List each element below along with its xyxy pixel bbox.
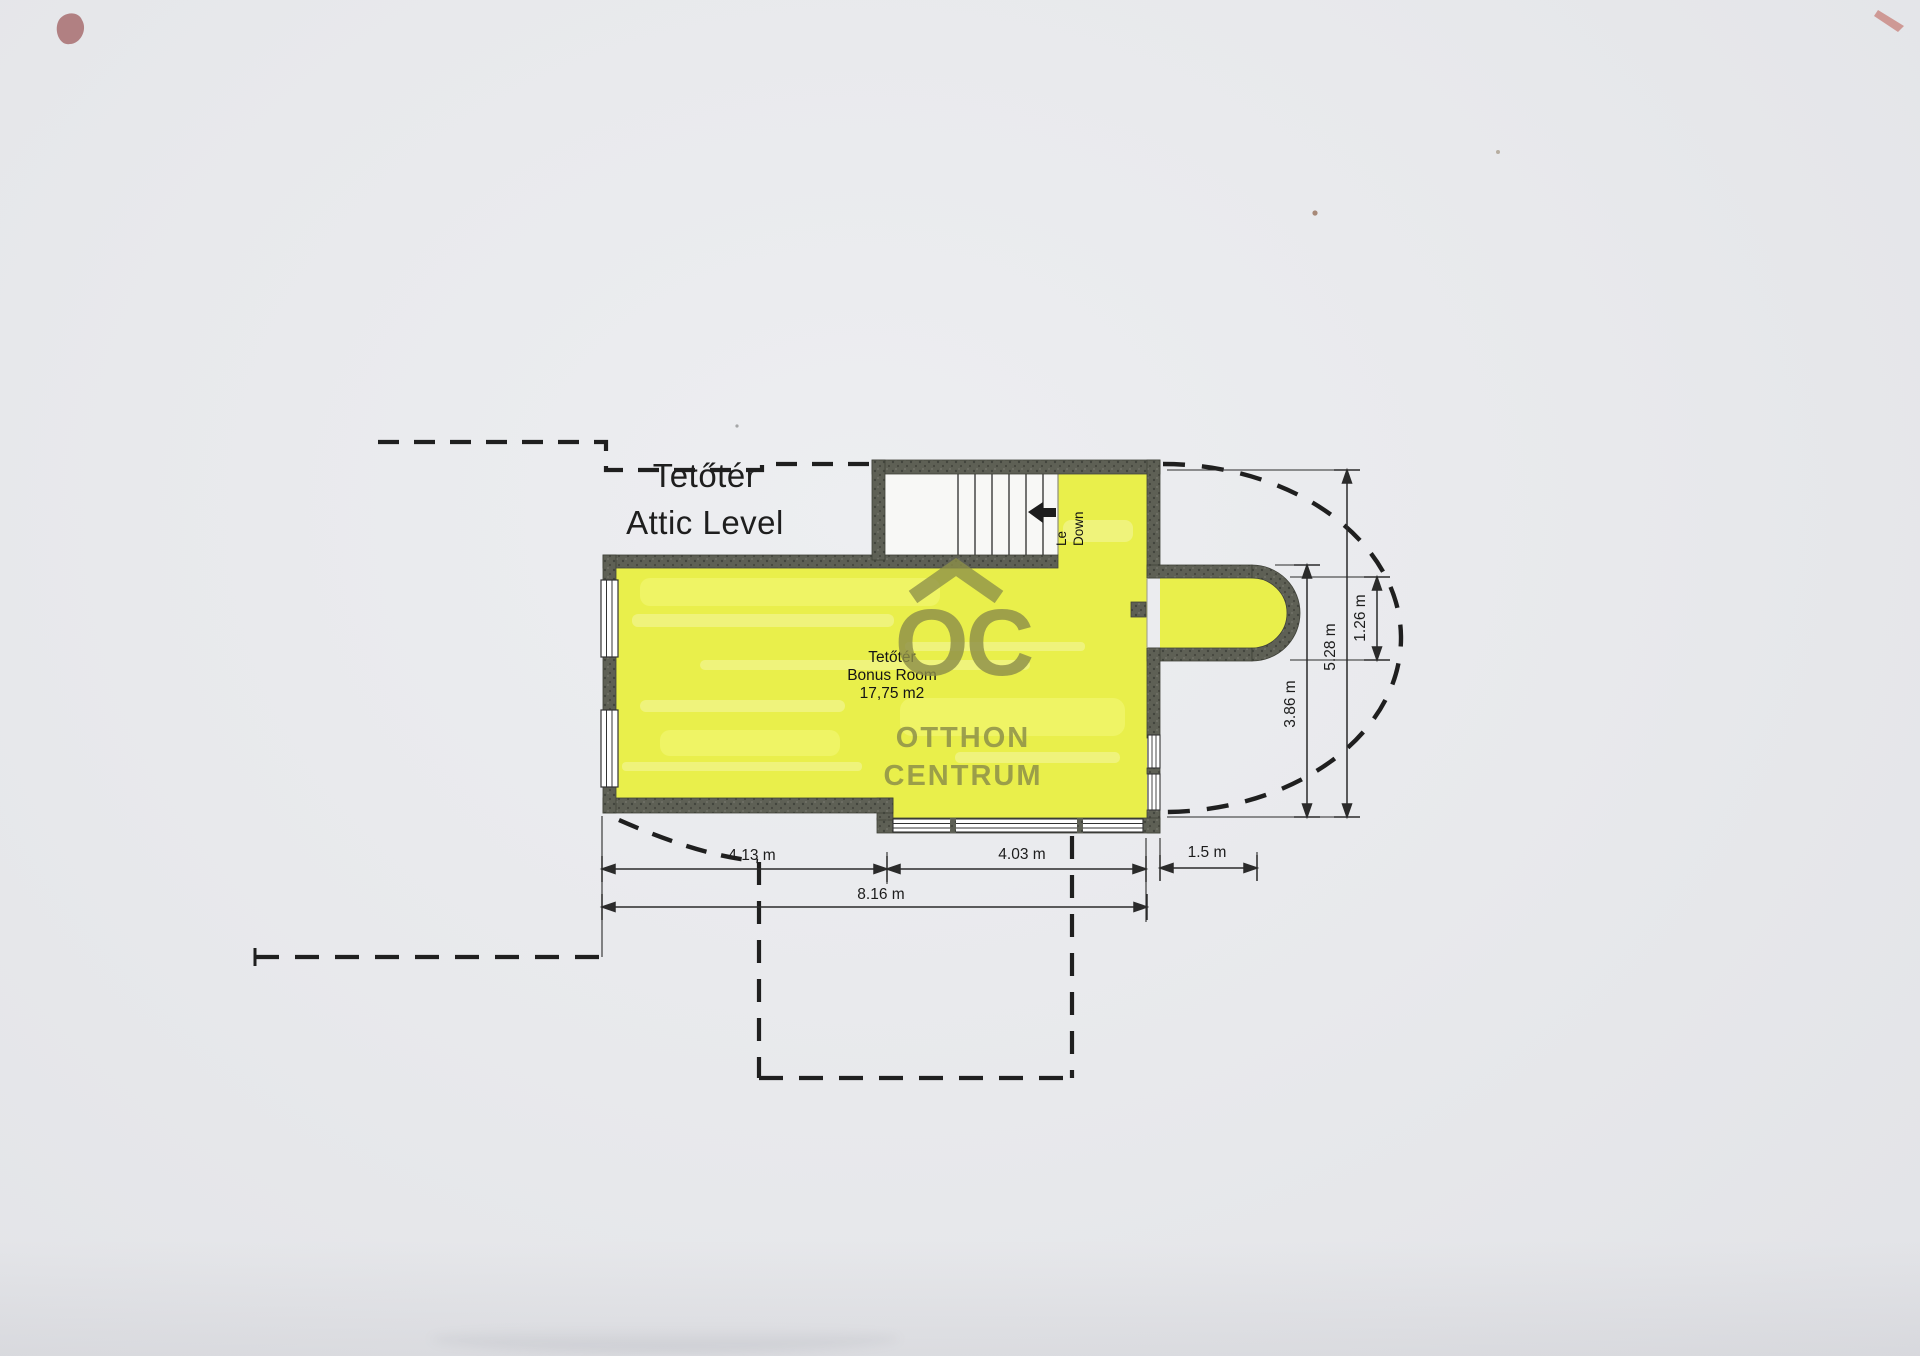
dimension-height-inner: 3.86 m [1282,654,1300,754]
plan-title-en: Attic Level [600,499,810,546]
dimension-width-total: 8.16 m [831,886,931,904]
dimension-width-left: 4.13 m [702,847,802,865]
stairs-direction-label: Le Down [1053,482,1089,546]
dimension-height-total: 5.28 m [1322,597,1340,697]
scan-artifacts [57,10,1904,428]
plan-title: Tetőtér Attic Level [600,452,810,546]
watermark-brand-line1: OTTHON [873,722,1053,755]
watermark-brand-line2: CENTRUM [873,760,1053,793]
plan-title-hu: Tetőtér [600,452,810,499]
dimension-bay-height: 1.26 m [1352,568,1370,668]
stairs-direction-hu: Le [1053,482,1070,546]
floor-plan-page: Tetőtér Attic Level Tetőtér Bonus Room 1… [0,0,1920,1356]
stairs-direction-en: Down [1070,482,1087,546]
dimension-width-right: 4.03 m [972,846,1072,864]
bottom-wall-windows [893,818,1143,833]
watermark-monogram: OC [888,588,1038,698]
structural-post [1131,602,1146,617]
dimension-bay-depth: 1.5 m [1157,844,1257,862]
